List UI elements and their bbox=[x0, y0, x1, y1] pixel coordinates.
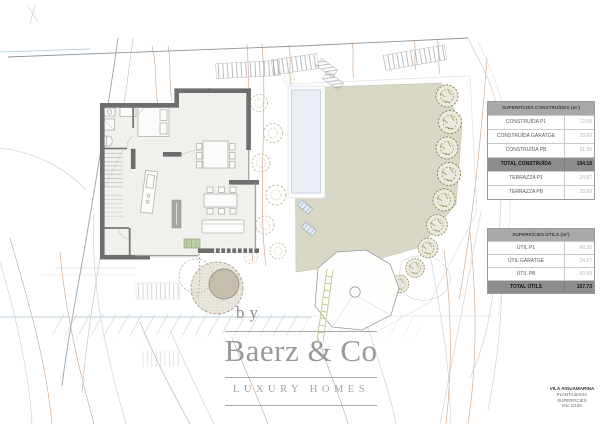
sofa bbox=[202, 220, 244, 233]
row-value: 24.67 bbox=[564, 255, 594, 267]
row-value: 157.73 bbox=[564, 281, 594, 293]
row-value: 83.68 bbox=[564, 268, 594, 280]
parking-hatch bbox=[216, 45, 447, 91]
table-row: ÚTIL P1 49.38 bbox=[488, 241, 594, 254]
dining-table bbox=[203, 141, 228, 168]
row-label: ÚTIL GARATGE bbox=[488, 255, 564, 267]
row-value: 49.38 bbox=[564, 242, 594, 254]
row-label: TOTAL CONSTRUÏDA bbox=[488, 158, 564, 171]
watermark-rule bbox=[225, 377, 377, 378]
row-value: 91.90 bbox=[564, 144, 594, 157]
pool bbox=[292, 90, 321, 193]
table-row: TERRAZZA PB 29.88 bbox=[488, 185, 594, 199]
bath-sink bbox=[104, 108, 115, 116]
row-value: 29.60 bbox=[564, 130, 594, 143]
table-header: SUPERFÍCIES CONSTRUÏDES (m²) bbox=[488, 102, 594, 115]
row-value: 72.68 bbox=[564, 116, 594, 129]
rock-outline bbox=[315, 250, 450, 330]
scale-label: Esc 1/100 bbox=[543, 403, 600, 409]
table-row-total: TOTAL CONSTRUÏDA 194.18 bbox=[488, 157, 594, 171]
table-superficies-construides: SUPERFÍCIES CONSTRUÏDES (m²) CONSTRUÏDA … bbox=[487, 101, 595, 200]
plan-sheet: SUPERFÍCIES CONSTRUÏDES (m²) CONSTRUÏDA … bbox=[0, 0, 600, 424]
table-row-total: TOTAL ÚTILS 157.73 bbox=[488, 280, 594, 293]
row-label: ÚTIL PB bbox=[488, 268, 564, 280]
large-tree bbox=[179, 259, 243, 314]
table-row: CONSTRUÏDA PB 91.90 bbox=[488, 143, 594, 157]
watermark-brand: Baerz & Co bbox=[203, 333, 399, 369]
table-superficies-utils: SUPERFÍCIES ÚTILS (m²) ÚTIL P1 49.38 ÚTI… bbox=[487, 228, 595, 294]
watermark-tagline: LUXURY HOMES bbox=[203, 384, 399, 395]
table-row: ÚTIL GARATGE 24.67 bbox=[488, 254, 594, 267]
row-label: CONSTRUÏDA GARATGE bbox=[488, 130, 564, 143]
table-row: TERRAZZA P1 24.87 bbox=[488, 171, 594, 185]
row-label: CONSTRUÏDA P1 bbox=[488, 116, 564, 129]
row-label: ÚTIL P1 bbox=[488, 242, 564, 254]
row-value: 194.18 bbox=[564, 158, 594, 171]
row-value: 24.87 bbox=[564, 172, 594, 185]
watermark-rule bbox=[225, 331, 377, 332]
table-row: CONSTRUÏDA GARATGE 29.60 bbox=[488, 129, 594, 143]
row-label: TERRAZZA P1 bbox=[488, 172, 564, 185]
watermark-rule bbox=[225, 405, 377, 406]
table-2 bbox=[204, 194, 237, 207]
table-row: ÚTIL PB 83.68 bbox=[488, 267, 594, 280]
row-label: CONSTRUÏDA PB bbox=[488, 144, 564, 157]
row-label: TERRAZZA PB bbox=[488, 186, 564, 199]
row-value: 29.88 bbox=[564, 186, 594, 199]
table-header: SUPERFÍCIES ÚTILS (m²) bbox=[488, 229, 594, 241]
planter-box bbox=[184, 239, 200, 248]
title-block: VILA AIGUAMARINA PLANTA BAIXA SUPERFICIE… bbox=[543, 386, 600, 409]
table-row: CONSTRUÏDA P1 72.68 bbox=[488, 115, 594, 129]
row-label: TOTAL ÚTILS bbox=[488, 281, 564, 293]
watermark-by: by bbox=[236, 303, 263, 323]
